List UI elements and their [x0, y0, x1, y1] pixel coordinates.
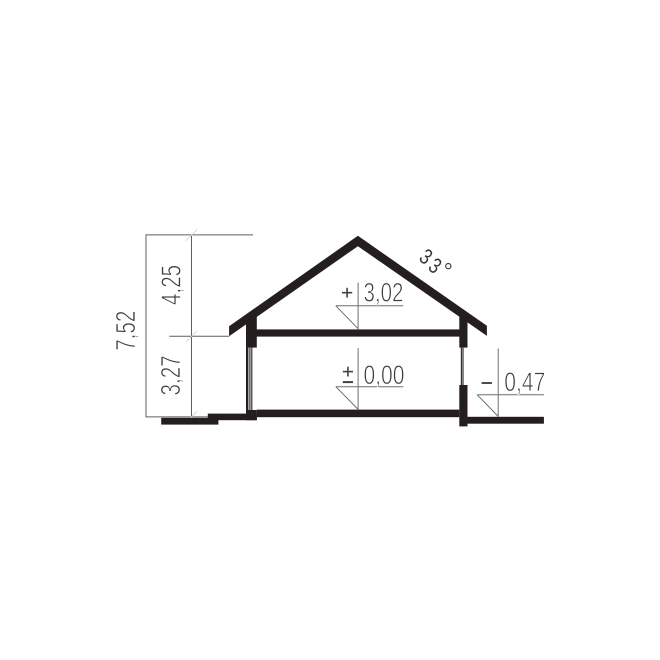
svg-text:3,27: 3,27 [156, 355, 187, 395]
svg-text:0,47: 0,47 [504, 367, 545, 397]
svg-text:7,52: 7,52 [111, 311, 142, 351]
svg-text:4,25: 4,25 [157, 265, 188, 305]
svg-text:0,00: 0,00 [364, 360, 405, 390]
svg-text:3,02: 3,02 [364, 278, 404, 308]
